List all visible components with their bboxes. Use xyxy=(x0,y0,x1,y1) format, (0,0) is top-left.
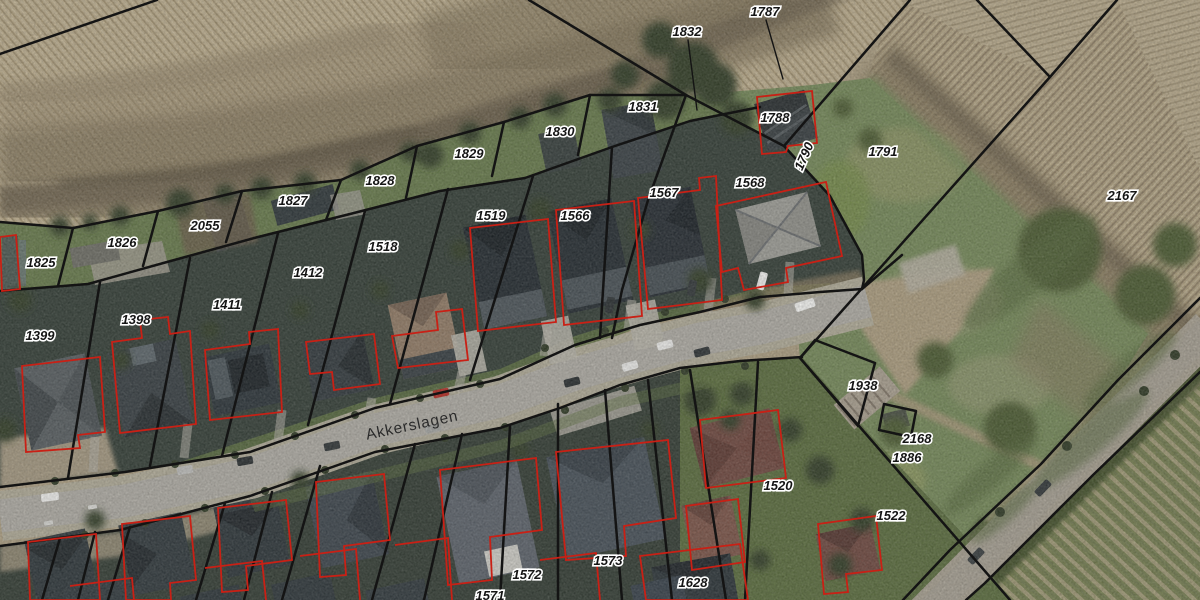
svg-text:1566: 1566 xyxy=(561,208,591,223)
svg-text:1519: 1519 xyxy=(477,208,507,223)
svg-text:1399: 1399 xyxy=(26,328,56,343)
svg-text:1518: 1518 xyxy=(369,239,399,254)
svg-text:1828: 1828 xyxy=(366,173,396,188)
svg-text:1886: 1886 xyxy=(893,450,923,465)
svg-text:1571: 1571 xyxy=(476,588,505,600)
svg-text:2055: 2055 xyxy=(190,218,221,233)
svg-text:1829: 1829 xyxy=(455,146,485,161)
svg-text:1791: 1791 xyxy=(869,144,898,159)
svg-text:1628: 1628 xyxy=(679,575,709,590)
svg-text:1826: 1826 xyxy=(108,235,138,250)
svg-text:1412: 1412 xyxy=(294,265,324,280)
svg-text:1787: 1787 xyxy=(751,4,781,19)
svg-text:1788: 1788 xyxy=(761,110,791,125)
svg-text:1938: 1938 xyxy=(849,378,879,393)
svg-text:1411: 1411 xyxy=(213,297,241,312)
svg-text:1831: 1831 xyxy=(629,99,658,114)
svg-text:1825: 1825 xyxy=(27,255,57,270)
svg-text:1830: 1830 xyxy=(546,124,576,139)
svg-text:1573: 1573 xyxy=(594,553,624,568)
svg-text:2168: 2168 xyxy=(902,431,933,446)
svg-text:1827: 1827 xyxy=(279,193,309,208)
svg-text:2167: 2167 xyxy=(1107,188,1138,203)
svg-text:1520: 1520 xyxy=(764,478,794,493)
svg-text:1832: 1832 xyxy=(673,24,703,39)
svg-text:1568: 1568 xyxy=(736,175,766,190)
svg-text:1567: 1567 xyxy=(650,185,680,200)
svg-text:1522: 1522 xyxy=(877,508,907,523)
svg-text:1572: 1572 xyxy=(513,567,543,582)
svg-text:1398: 1398 xyxy=(122,312,152,327)
